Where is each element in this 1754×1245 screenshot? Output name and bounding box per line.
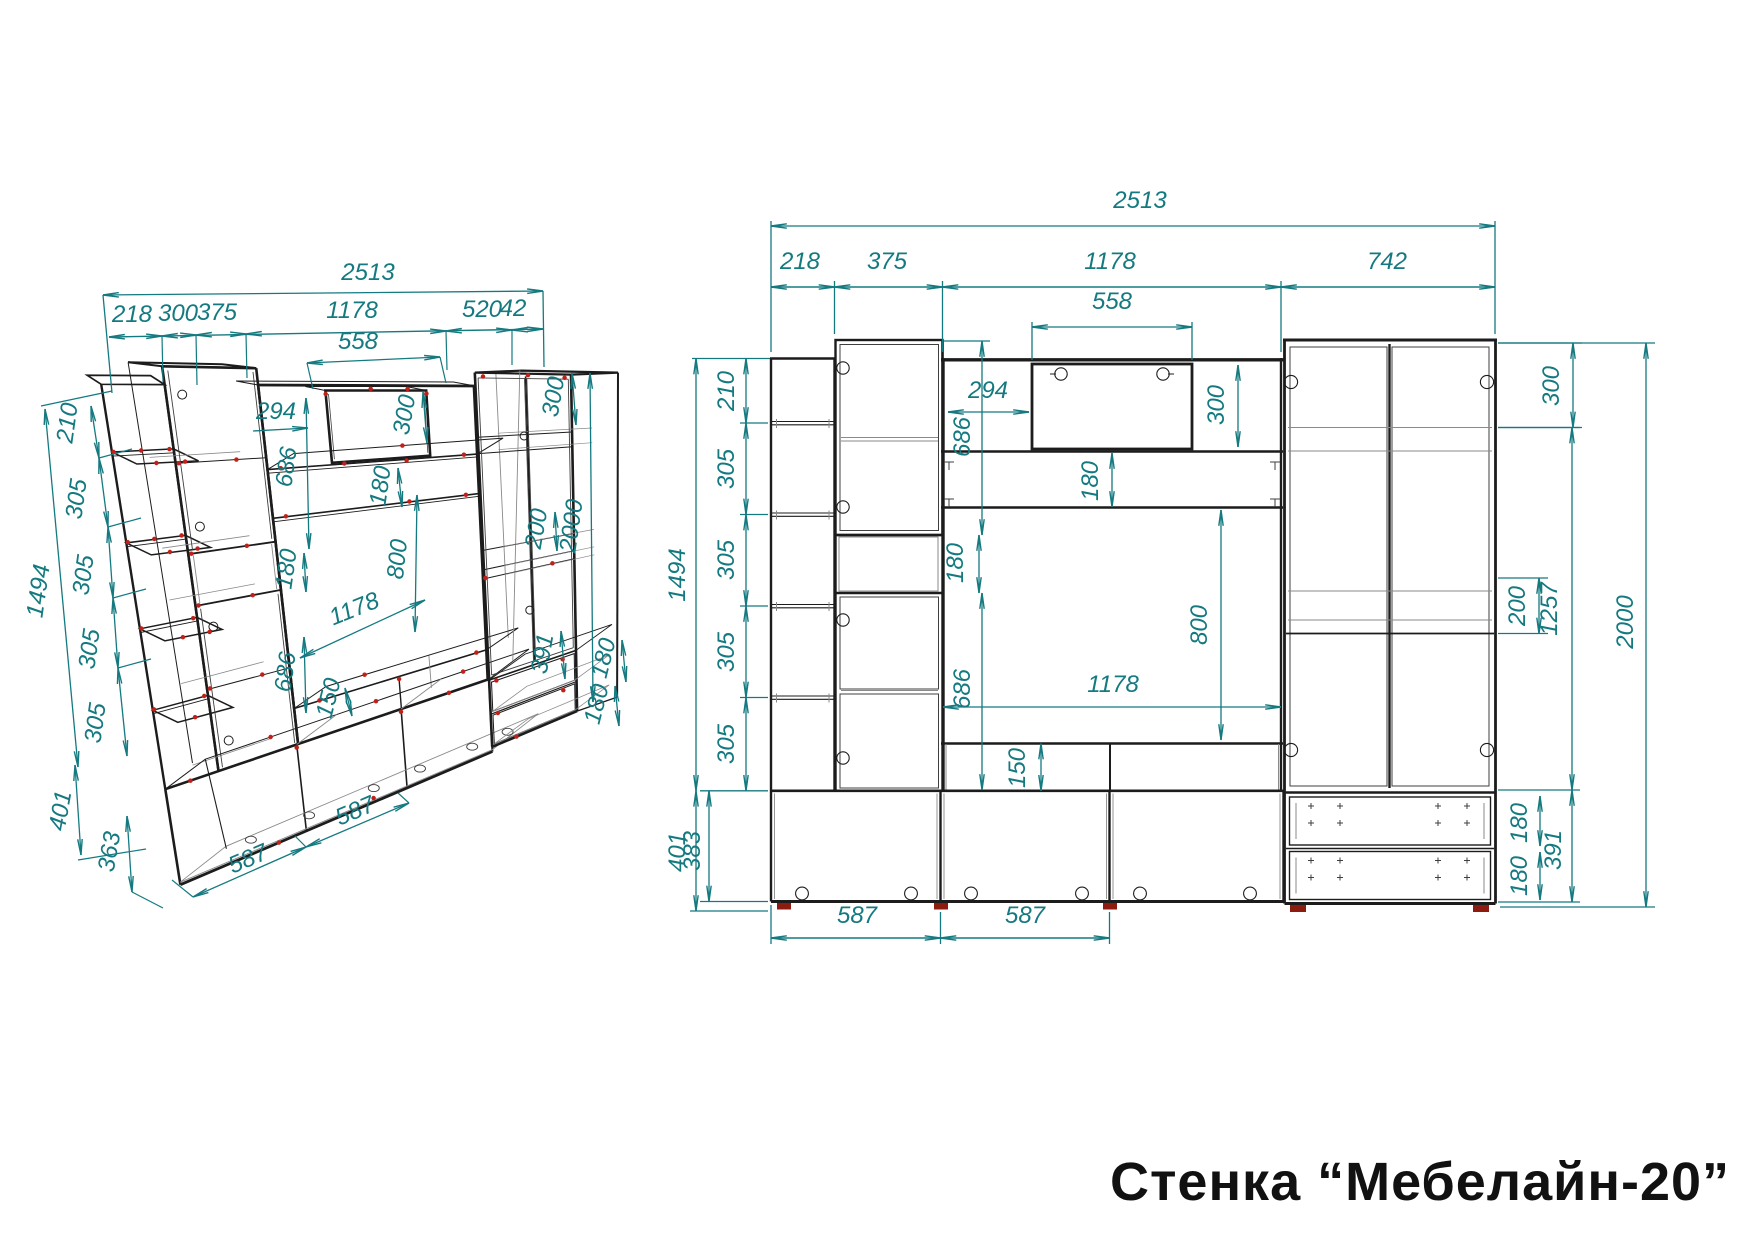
- svg-text:1178: 1178: [1084, 248, 1136, 275]
- svg-text:558: 558: [1092, 288, 1133, 315]
- svg-text:686: 686: [949, 416, 976, 457]
- svg-text:294: 294: [967, 377, 1008, 404]
- svg-text:742: 742: [1367, 248, 1407, 275]
- svg-text:180: 180: [942, 542, 969, 583]
- svg-text:Стенка “Мебелайн-20”: Стенка “Мебелайн-20”: [1110, 1152, 1730, 1212]
- svg-text:180: 180: [1506, 802, 1533, 843]
- svg-text:558: 558: [338, 328, 379, 355]
- svg-text:2000: 2000: [1612, 595, 1639, 650]
- svg-text:180: 180: [1506, 855, 1533, 896]
- svg-text:391: 391: [1540, 830, 1567, 870]
- svg-text:150: 150: [1004, 747, 1031, 788]
- svg-text:218: 218: [111, 301, 153, 328]
- svg-text:305: 305: [79, 701, 111, 745]
- svg-text:305: 305: [73, 627, 105, 671]
- svg-text:305: 305: [713, 631, 740, 672]
- svg-text:300: 300: [1203, 384, 1230, 425]
- svg-text:520: 520: [462, 296, 503, 323]
- svg-text:587: 587: [1005, 902, 1047, 929]
- svg-text:1178: 1178: [326, 297, 378, 324]
- svg-text:686: 686: [949, 668, 976, 709]
- svg-text:587: 587: [837, 902, 879, 929]
- svg-text:2513: 2513: [340, 259, 395, 286]
- svg-text:686: 686: [270, 445, 302, 489]
- svg-text:300: 300: [158, 300, 199, 327]
- svg-text:218: 218: [779, 248, 821, 275]
- svg-text:200: 200: [1504, 585, 1531, 627]
- svg-text:1257: 1257: [1536, 581, 1563, 636]
- svg-text:305: 305: [713, 723, 740, 764]
- svg-text:210: 210: [51, 401, 84, 446]
- svg-text:800: 800: [382, 537, 413, 580]
- svg-text:1494: 1494: [664, 548, 691, 601]
- svg-text:305: 305: [713, 539, 740, 580]
- svg-text:300: 300: [1538, 365, 1565, 406]
- svg-text:180: 180: [364, 464, 396, 508]
- svg-text:2513: 2513: [1112, 187, 1167, 214]
- svg-text:305: 305: [713, 448, 740, 489]
- svg-text:210: 210: [713, 370, 740, 412]
- svg-text:305: 305: [60, 477, 92, 521]
- svg-text:383: 383: [679, 830, 706, 871]
- svg-text:180: 180: [1077, 460, 1104, 501]
- svg-text:800: 800: [1186, 604, 1213, 645]
- svg-text:180: 180: [270, 547, 302, 591]
- svg-text:375: 375: [197, 299, 238, 326]
- svg-text:1178: 1178: [1087, 671, 1139, 698]
- svg-text:305: 305: [67, 553, 99, 597]
- svg-text:686: 686: [269, 650, 301, 694]
- svg-text:294: 294: [255, 398, 296, 425]
- svg-text:42: 42: [500, 295, 527, 322]
- svg-text:375: 375: [867, 248, 908, 275]
